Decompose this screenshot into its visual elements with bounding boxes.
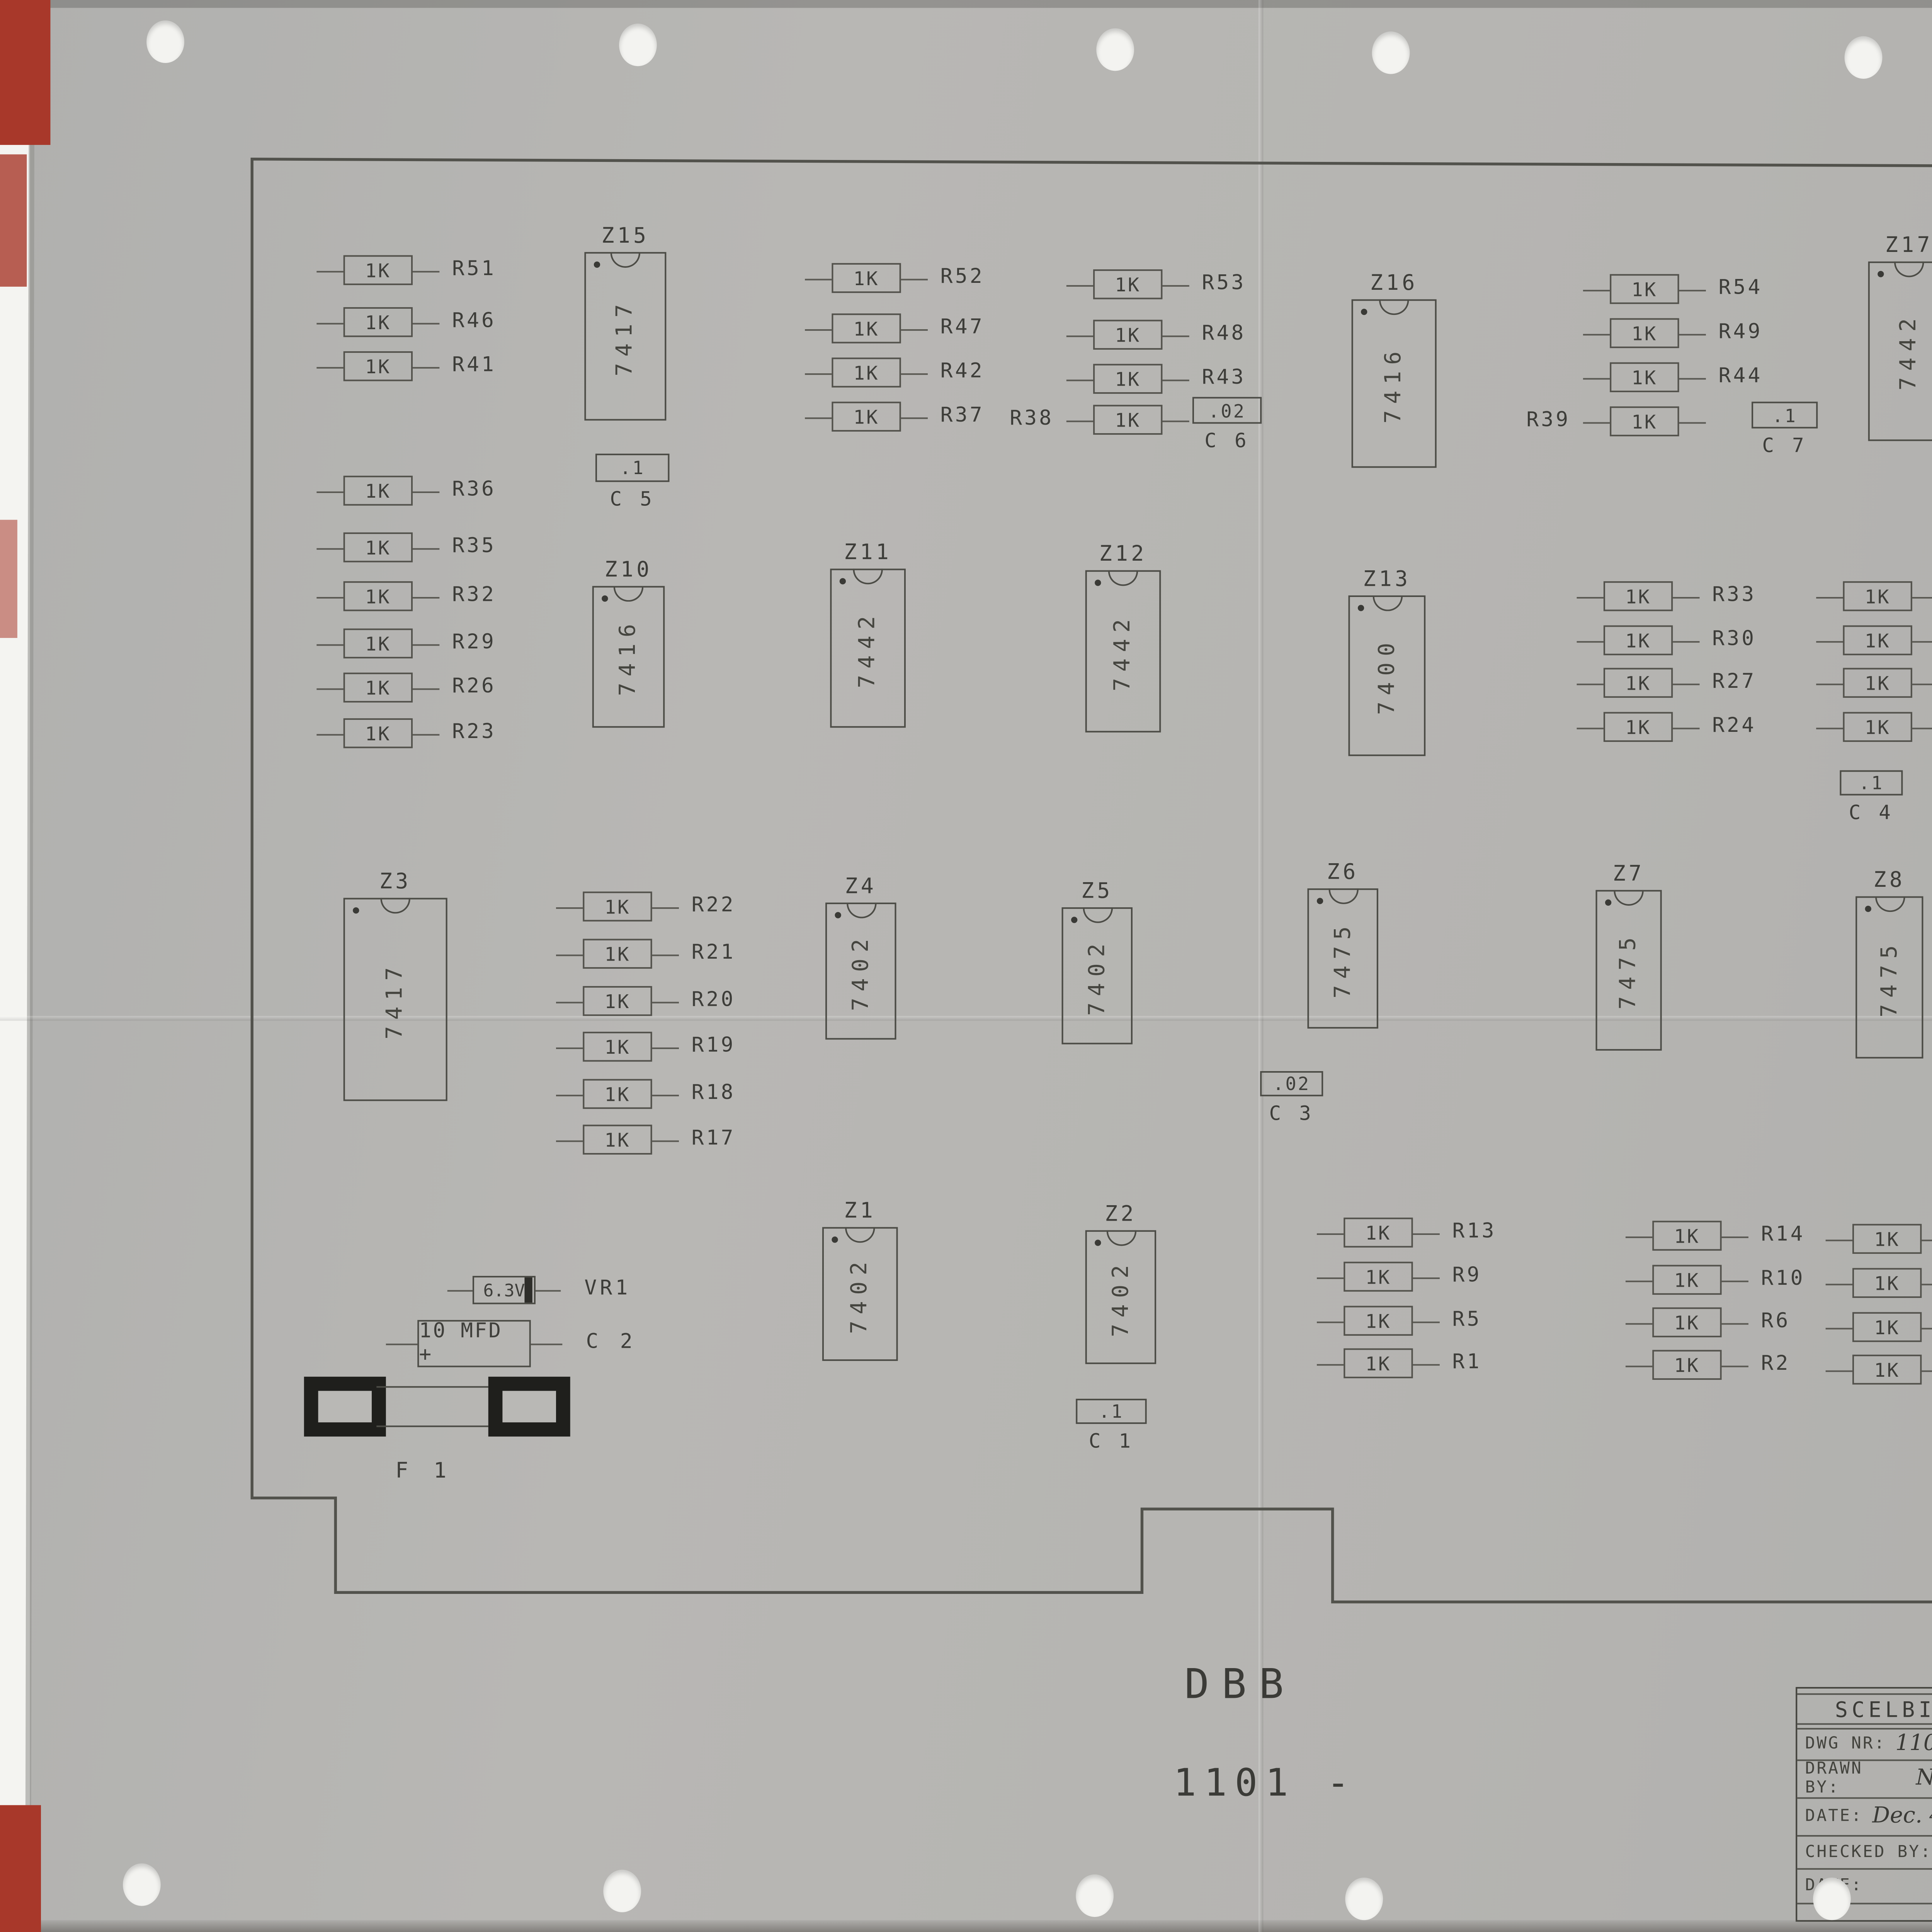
chip-part-number: 7442 <box>1111 612 1136 690</box>
chip-pin1-dot-icon <box>1878 271 1884 277</box>
chip-ref-label: Z16 <box>1337 271 1451 296</box>
chip-pin1-dot-icon <box>1605 900 1611 906</box>
capacitor-value: .1 <box>1859 772 1884 794</box>
chip-notch-icon <box>614 586 643 602</box>
chip-pin1-dot-icon <box>840 578 846 584</box>
resistor-value: 1K <box>1625 585 1651 607</box>
resistor-value: 1K <box>604 1083 630 1105</box>
title-block-row-label: DATE: <box>1805 1807 1863 1826</box>
resistor-value: 1K <box>1365 1352 1391 1374</box>
chip-part-number: 7475 <box>1877 938 1902 1017</box>
resistor-ref-label: R10 <box>1761 1267 1805 1290</box>
resistor-value: 1K <box>1631 410 1657 432</box>
chip-ref-label: Z3 <box>329 869 461 895</box>
resistor-value: 1K <box>854 267 879 289</box>
resistor-R41: 1KR41 <box>344 351 413 381</box>
resistor-R47: 1KR47 <box>832 313 901 343</box>
resistor-value: 1K <box>1365 1265 1391 1287</box>
chip-part-number: 7475 <box>1330 919 1355 998</box>
chip-notch-icon <box>1894 262 1924 277</box>
resistor-value: 1K <box>1365 1310 1391 1332</box>
voltage-regulator-value: 6.3V <box>483 1280 525 1300</box>
chip-notch-icon <box>1379 299 1409 315</box>
chip-part-number: 7402 <box>1108 1258 1133 1337</box>
title-block-rule <box>1797 1693 1932 1695</box>
resistor-R30: 1KR30 <box>1604 625 1673 655</box>
resistor-ref-label: R1 <box>1452 1350 1482 1374</box>
chip-notch-icon <box>1108 570 1138 586</box>
chip-ref-label: Z4 <box>811 874 910 899</box>
resistor-value: 1K <box>1631 322 1657 344</box>
resistor-value: 1K <box>1874 1316 1900 1338</box>
drawing-sheet: 7417Z157416Z167442Z177416Z107442Z117442Z… <box>0 0 1932 1932</box>
title-block-rule <box>1797 1835 1932 1837</box>
capacitor-C5: .1C 5 <box>595 454 670 482</box>
resistor-value: 1K <box>604 943 630 965</box>
capacitor-C4: .1C 4 <box>1840 770 1903 795</box>
chip-pin1-dot-icon <box>353 907 359 913</box>
resistor-R37: 1KR37 <box>832 402 901 432</box>
resistor-value: 1K <box>1625 629 1651 651</box>
capacitor-ref-label: C 5 <box>578 487 687 510</box>
title-block-row: CHECKED BY: <box>1797 1835 1932 1868</box>
board-code-label: DBB <box>1185 1662 1296 1709</box>
chip-ref-label: Z13 <box>1334 567 1440 592</box>
resistor-ref-label: R6 <box>1761 1309 1791 1333</box>
chip-part-number: 7475 <box>1616 931 1641 1010</box>
chip-Z10: 7416Z10 <box>592 586 665 728</box>
resistor-ref-label: R17 <box>692 1126 736 1150</box>
chip-Z13: 7400Z13 <box>1348 595 1425 756</box>
resistor-ref-label: R27 <box>1712 670 1756 693</box>
resistor-value: 1K <box>365 633 391 655</box>
chip-ref-label: Z5 <box>1048 879 1147 904</box>
resistor-ref-label: R53 <box>1202 271 1246 295</box>
chip-Z12: 7442Z12 <box>1085 570 1161 733</box>
capacitor-value: .02 <box>1273 1073 1310 1095</box>
resistor-ref-label: R35 <box>452 534 496 558</box>
capacitor-value: .1 <box>1099 1400 1124 1422</box>
resistor-value: 1K <box>1631 278 1657 300</box>
chip-part-number: 7442 <box>1896 312 1922 391</box>
capacitor-value: .1 <box>1772 404 1797 426</box>
title-block-row-label: DRAWN BY: <box>1805 1759 1906 1797</box>
chip-Z4: 7402Z4 <box>825 903 896 1040</box>
title-block-row: DWG NR:1101A <box>1797 1728 1932 1760</box>
resistor-R28: 1KR28 <box>1843 668 1912 697</box>
title-block-row-value: N. Wadsworth <box>1916 1766 1932 1791</box>
chip-pin1-dot-icon <box>1071 917 1077 923</box>
resistor-R54: 1KR54 <box>1610 274 1679 304</box>
resistor-ref-label: R9 <box>1452 1264 1482 1287</box>
chip-notch-icon <box>1372 595 1402 611</box>
resistor-R29: 1KR29 <box>344 629 413 658</box>
resistor-ref-label: R42 <box>940 359 985 383</box>
resistor-value: 1K <box>1874 1272 1900 1294</box>
title-block-row-label: CHECKED BY: <box>1805 1842 1932 1861</box>
resistor-ref-label: R43 <box>1202 366 1246 389</box>
resistor-ref-label: R24 <box>1712 714 1756 737</box>
resistor-R24: 1KR24 <box>1604 712 1673 742</box>
chip-pin1-dot-icon <box>835 912 841 918</box>
voltage-regulator-ref-label: VR1 <box>584 1277 631 1301</box>
capacitor-C1: .1C 1 <box>1076 1399 1146 1424</box>
title-block-rule <box>1797 1797 1932 1799</box>
resistor-value: 1K <box>365 677 391 699</box>
resistor-R48: 1KR48 <box>1093 320 1162 350</box>
chip-notch-icon <box>1082 907 1112 923</box>
resistor-value: 1K <box>1625 672 1651 694</box>
resistor-R1: 1KR1 <box>1344 1348 1413 1378</box>
resistor-R33: 1KR33 <box>1604 581 1673 611</box>
resistor-ref-label: R49 <box>1718 320 1762 344</box>
capacitor-ref-label: C 6 <box>1175 429 1279 452</box>
punch-hole <box>1813 1878 1851 1920</box>
resistor-ref-label: R2 <box>1761 1352 1791 1375</box>
resistor-R49: 1KR49 <box>1610 318 1679 348</box>
resistor-value: 1K <box>604 990 630 1012</box>
fuse-end-cap-icon <box>304 1377 386 1437</box>
resistor-value: 1K <box>365 311 391 333</box>
resistor-R20: 1KR20 <box>583 986 652 1016</box>
fuse-F1: F 1 <box>304 1377 570 1437</box>
chip-pin1-dot-icon <box>1317 898 1323 904</box>
resistor-value: 1K <box>1865 672 1891 694</box>
resistor-R17: 1KR17 <box>583 1125 652 1155</box>
resistor-ref-label: R39 <box>1526 408 1570 432</box>
resistor-value: 1K <box>1115 324 1141 346</box>
diode-band-icon <box>524 1277 532 1303</box>
fuse-ref-label: F 1 <box>395 1459 452 1484</box>
capacitor-ref-label: C 2 <box>586 1331 637 1354</box>
resistor-ref-label: R38 <box>1010 406 1054 430</box>
resistor-ref-label: R30 <box>1712 627 1756 651</box>
punch-hole <box>603 1870 641 1912</box>
chip-Z3: 7417Z3 <box>344 898 447 1101</box>
resistor-value: 1K <box>1674 1269 1700 1291</box>
chip-Z1: 7402Z1 <box>822 1227 898 1361</box>
resistor-value: 1K <box>1365 1221 1391 1243</box>
resistor-value: 1K <box>1625 716 1651 738</box>
resistor-ref-label: R13 <box>1452 1219 1497 1243</box>
chip-part-number: 7442 <box>855 609 881 687</box>
capacitor-ref-label: C 7 <box>1734 433 1835 457</box>
resistor-R44: 1KR44 <box>1610 362 1679 392</box>
chip-ref-label: Z17 <box>1854 233 1932 258</box>
resistor-ref-label: R54 <box>1718 276 1762 299</box>
chip-ref-label: Z7 <box>1582 862 1676 887</box>
title-block-rule <box>1797 1759 1932 1761</box>
voltage-regulator-VR1: 6.3VVR1 <box>473 1276 536 1304</box>
resistor-ref-label: R41 <box>452 353 496 377</box>
resistor-ref-label: R5 <box>1452 1308 1482 1331</box>
resistor-ref-label: R46 <box>452 309 496 332</box>
punch-hole <box>1076 1874 1114 1917</box>
resistor-R6: 1KR6 <box>1652 1307 1721 1337</box>
resistor-value: 1K <box>1865 629 1891 651</box>
resistor-ref-label: R22 <box>692 893 736 917</box>
chip-part-number: 7402 <box>848 932 873 1010</box>
resistor-value: 1K <box>1631 366 1657 388</box>
chip-Z7: 7475Z7 <box>1595 890 1662 1051</box>
chip-notch-icon <box>1328 888 1357 904</box>
title-block-row-value: Dec. 4, 1973 <box>1872 1804 1932 1829</box>
chip-pin1-dot-icon <box>1095 580 1101 586</box>
scanned-drawing-page: 7417Z157416Z167442Z177416Z107442Z117442Z… <box>0 0 1932 1932</box>
chip-ref-label: Z2 <box>1071 1202 1170 1227</box>
resistor-value: 1K <box>854 362 879 384</box>
resistor-value: 1K <box>1674 1225 1700 1247</box>
chip-ref-label: Z6 <box>1293 860 1393 885</box>
punch-hole <box>1096 28 1134 71</box>
resistor-R18: 1KR18 <box>583 1079 652 1109</box>
chip-ref-label: Z11 <box>816 540 920 565</box>
chip-notch-icon <box>853 569 883 585</box>
resistor-ref-label: R37 <box>940 403 985 427</box>
punch-hole <box>123 1863 161 1906</box>
chip-Z5: 7402Z5 <box>1062 907 1133 1044</box>
chip-notch-icon <box>846 903 876 918</box>
capacitor-ref-label: C 4 <box>1823 800 1920 824</box>
fuse-body-icon <box>376 1386 498 1427</box>
chip-pin1-dot-icon <box>1095 1240 1101 1246</box>
resistor-value: 1K <box>604 1036 630 1058</box>
resistor-ref-label: R19 <box>692 1034 736 1057</box>
chip-ref-label: Z12 <box>1071 542 1175 567</box>
chip-Z2: 7402Z2 <box>1085 1230 1156 1364</box>
chip-notch-icon <box>380 898 410 914</box>
resistor-R52: 1KR52 <box>832 263 901 293</box>
resistor-ref-label: R47 <box>940 315 985 339</box>
capacitor-value: 10 MFD + <box>419 1320 529 1367</box>
chip-Z15: 7417Z15 <box>584 252 666 420</box>
resistor-ref-label: R26 <box>452 674 496 698</box>
resistor-R15: 1KR15 <box>1852 1224 1922 1253</box>
resistor-ref-label: R36 <box>452 478 496 501</box>
resistor-R21: 1KR21 <box>583 939 652 969</box>
resistor-value: 1K <box>854 406 879 428</box>
capacitor-value: .1 <box>620 457 645 479</box>
chip-part-number: 7400 <box>1374 636 1400 715</box>
resistor-R14: 1KR14 <box>1652 1221 1721 1250</box>
resistor-value: 1K <box>1865 716 1891 738</box>
capacitor-C2: 10 MFD +C 2 <box>417 1320 531 1367</box>
chip-ref-label: Z10 <box>578 558 679 583</box>
resistor-R51: 1KR51 <box>344 255 413 285</box>
resistor-R23: 1KR23 <box>344 718 413 748</box>
resistor-value: 1K <box>365 480 391 502</box>
chip-pin1-dot-icon <box>602 595 608 602</box>
capacitor-ref-label: C 3 <box>1243 1101 1340 1124</box>
resistor-R3: 1KR3 <box>1852 1355 1922 1384</box>
resistor-value: 1K <box>1674 1354 1700 1376</box>
chip-notch-icon <box>1874 896 1904 912</box>
punch-hole <box>619 24 657 66</box>
resistor-ref-label: R48 <box>1202 321 1246 345</box>
chip-pin1-dot-icon <box>1361 309 1367 315</box>
resistor-ref-label: R51 <box>452 257 496 281</box>
resistor-R42: 1KR42 <box>832 357 901 387</box>
resistor-R2: 1KR2 <box>1652 1350 1721 1380</box>
resistor-R31: 1KR31 <box>1843 625 1912 655</box>
title-block-row-label: DWG NR: <box>1805 1734 1886 1753</box>
resistor-ref-label: R21 <box>692 940 736 964</box>
capacitor-ref-label: C 1 <box>1058 1429 1164 1452</box>
resistor-R10: 1KR10 <box>1652 1265 1721 1294</box>
capacitor-C6: .02C 6 <box>1192 397 1262 423</box>
resistor-ref-label: R20 <box>692 988 736 1011</box>
resistor-value: 1K <box>365 355 391 377</box>
chip-Z6: 7475Z6 <box>1307 888 1378 1029</box>
chip-notch-icon <box>1614 890 1643 906</box>
punch-hole <box>146 20 184 63</box>
chip-Z11: 7442Z11 <box>830 569 906 728</box>
chip-part-number: 7417 <box>613 297 638 376</box>
resistor-R19: 1KR19 <box>583 1032 652 1061</box>
chip-part-number: 7402 <box>1085 937 1110 1015</box>
chip-pin1-dot-icon <box>1865 906 1871 912</box>
chip-notch-icon <box>611 252 640 268</box>
chip-pin1-dot-icon <box>1358 605 1364 611</box>
punch-hole <box>1372 32 1410 74</box>
resistor-ref-label: R29 <box>452 630 496 654</box>
resistor-R22: 1KR22 <box>583 891 652 921</box>
punch-hole <box>1845 36 1883 79</box>
resistor-value: 1K <box>365 722 391 744</box>
resistor-R11: 1KR11 <box>1852 1268 1922 1298</box>
chip-notch-icon <box>845 1227 875 1243</box>
title-block-rule <box>1797 1868 1932 1870</box>
capacitor-value: .02 <box>1208 399 1246 421</box>
chip-ref-label: Z8 <box>1841 868 1932 893</box>
resistor-R5: 1KR5 <box>1344 1306 1413 1335</box>
title-block-row: DATE:Dec. 4, 1973 <box>1797 1797 1932 1835</box>
chip-ref-label: Z1 <box>808 1199 912 1224</box>
sheet-number-label: 1101 - <box>1173 1761 1357 1805</box>
resistor-ref-label: R18 <box>692 1081 736 1104</box>
chip-part-number: 7417 <box>383 960 408 1039</box>
capacitor-C7: .1C 7 <box>1752 402 1818 429</box>
chip-part-number: 7402 <box>847 1255 872 1333</box>
chip-Z16: 7416Z16 <box>1352 299 1437 468</box>
resistor-value: 1K <box>1674 1311 1700 1333</box>
resistor-ref-label: R14 <box>1761 1223 1805 1246</box>
chip-pin1-dot-icon <box>832 1236 838 1243</box>
title-block-rule <box>1797 1723 1932 1725</box>
resistor-ref-label: R32 <box>452 583 496 607</box>
resistor-value: 1K <box>1865 585 1891 607</box>
resistor-ref-label: R44 <box>1718 364 1762 388</box>
resistor-ref-label: R33 <box>1712 583 1756 607</box>
resistor-value: 1K <box>1115 273 1141 295</box>
resistor-R38: 1KR38 <box>1093 405 1162 435</box>
chip-Z8: 7475Z8 <box>1855 896 1923 1059</box>
resistor-R13: 1KR13 <box>1344 1218 1413 1247</box>
title-block-row: DRAWN BY:N. Wadsworth <box>1797 1759 1932 1797</box>
company-name: SCELBI COMPUTER CONSULTING, INC. <box>1797 1698 1932 1723</box>
resistor-value: 1K <box>365 536 391 558</box>
resistor-R9: 1KR9 <box>1344 1262 1413 1291</box>
resistor-R39: 1KR39 <box>1610 406 1679 436</box>
chip-part-number: 7416 <box>1381 344 1406 423</box>
resistor-R43: 1KR43 <box>1093 364 1162 394</box>
resistor-R36: 1KR36 <box>344 476 413 505</box>
resistor-R32: 1KR32 <box>344 581 413 611</box>
title-block-row-value: 1101A <box>1895 1731 1932 1756</box>
chip-Z17: 7442Z17 <box>1868 262 1932 441</box>
punch-hole <box>1345 1878 1383 1920</box>
resistor-R35: 1KR35 <box>344 532 413 562</box>
resistor-R34: 1KR34 <box>1843 581 1912 611</box>
resistor-value: 1K <box>604 1129 630 1151</box>
resistor-R7: 1KR7 <box>1852 1312 1922 1342</box>
resistor-R53: 1KR53 <box>1093 269 1162 299</box>
chip-notch-icon <box>1106 1230 1136 1246</box>
resistor-R25: 1KR25 <box>1843 712 1912 742</box>
chip-part-number: 7416 <box>616 618 641 696</box>
resistor-value: 1K <box>604 895 630 917</box>
resistor-value: 1K <box>1874 1359 1900 1381</box>
resistor-value: 1K <box>1874 1228 1900 1250</box>
chip-ref-label: Z15 <box>570 224 680 249</box>
resistor-R26: 1KR26 <box>344 673 413 702</box>
chip-pin1-dot-icon <box>594 262 600 268</box>
resistor-value: 1K <box>365 585 391 607</box>
resistor-value: 1K <box>365 259 391 281</box>
resistor-R27: 1KR27 <box>1604 668 1673 697</box>
resistor-value: 1K <box>1115 368 1141 390</box>
resistor-R46: 1KR46 <box>344 307 413 337</box>
resistor-value: 1K <box>854 317 879 339</box>
resistor-ref-label: R23 <box>452 720 496 743</box>
resistor-value: 1K <box>1115 409 1141 431</box>
fuse-end-cap-icon <box>488 1377 570 1437</box>
capacitor-C3: .02C 3 <box>1260 1071 1323 1096</box>
resistor-ref-label: R52 <box>940 265 985 288</box>
